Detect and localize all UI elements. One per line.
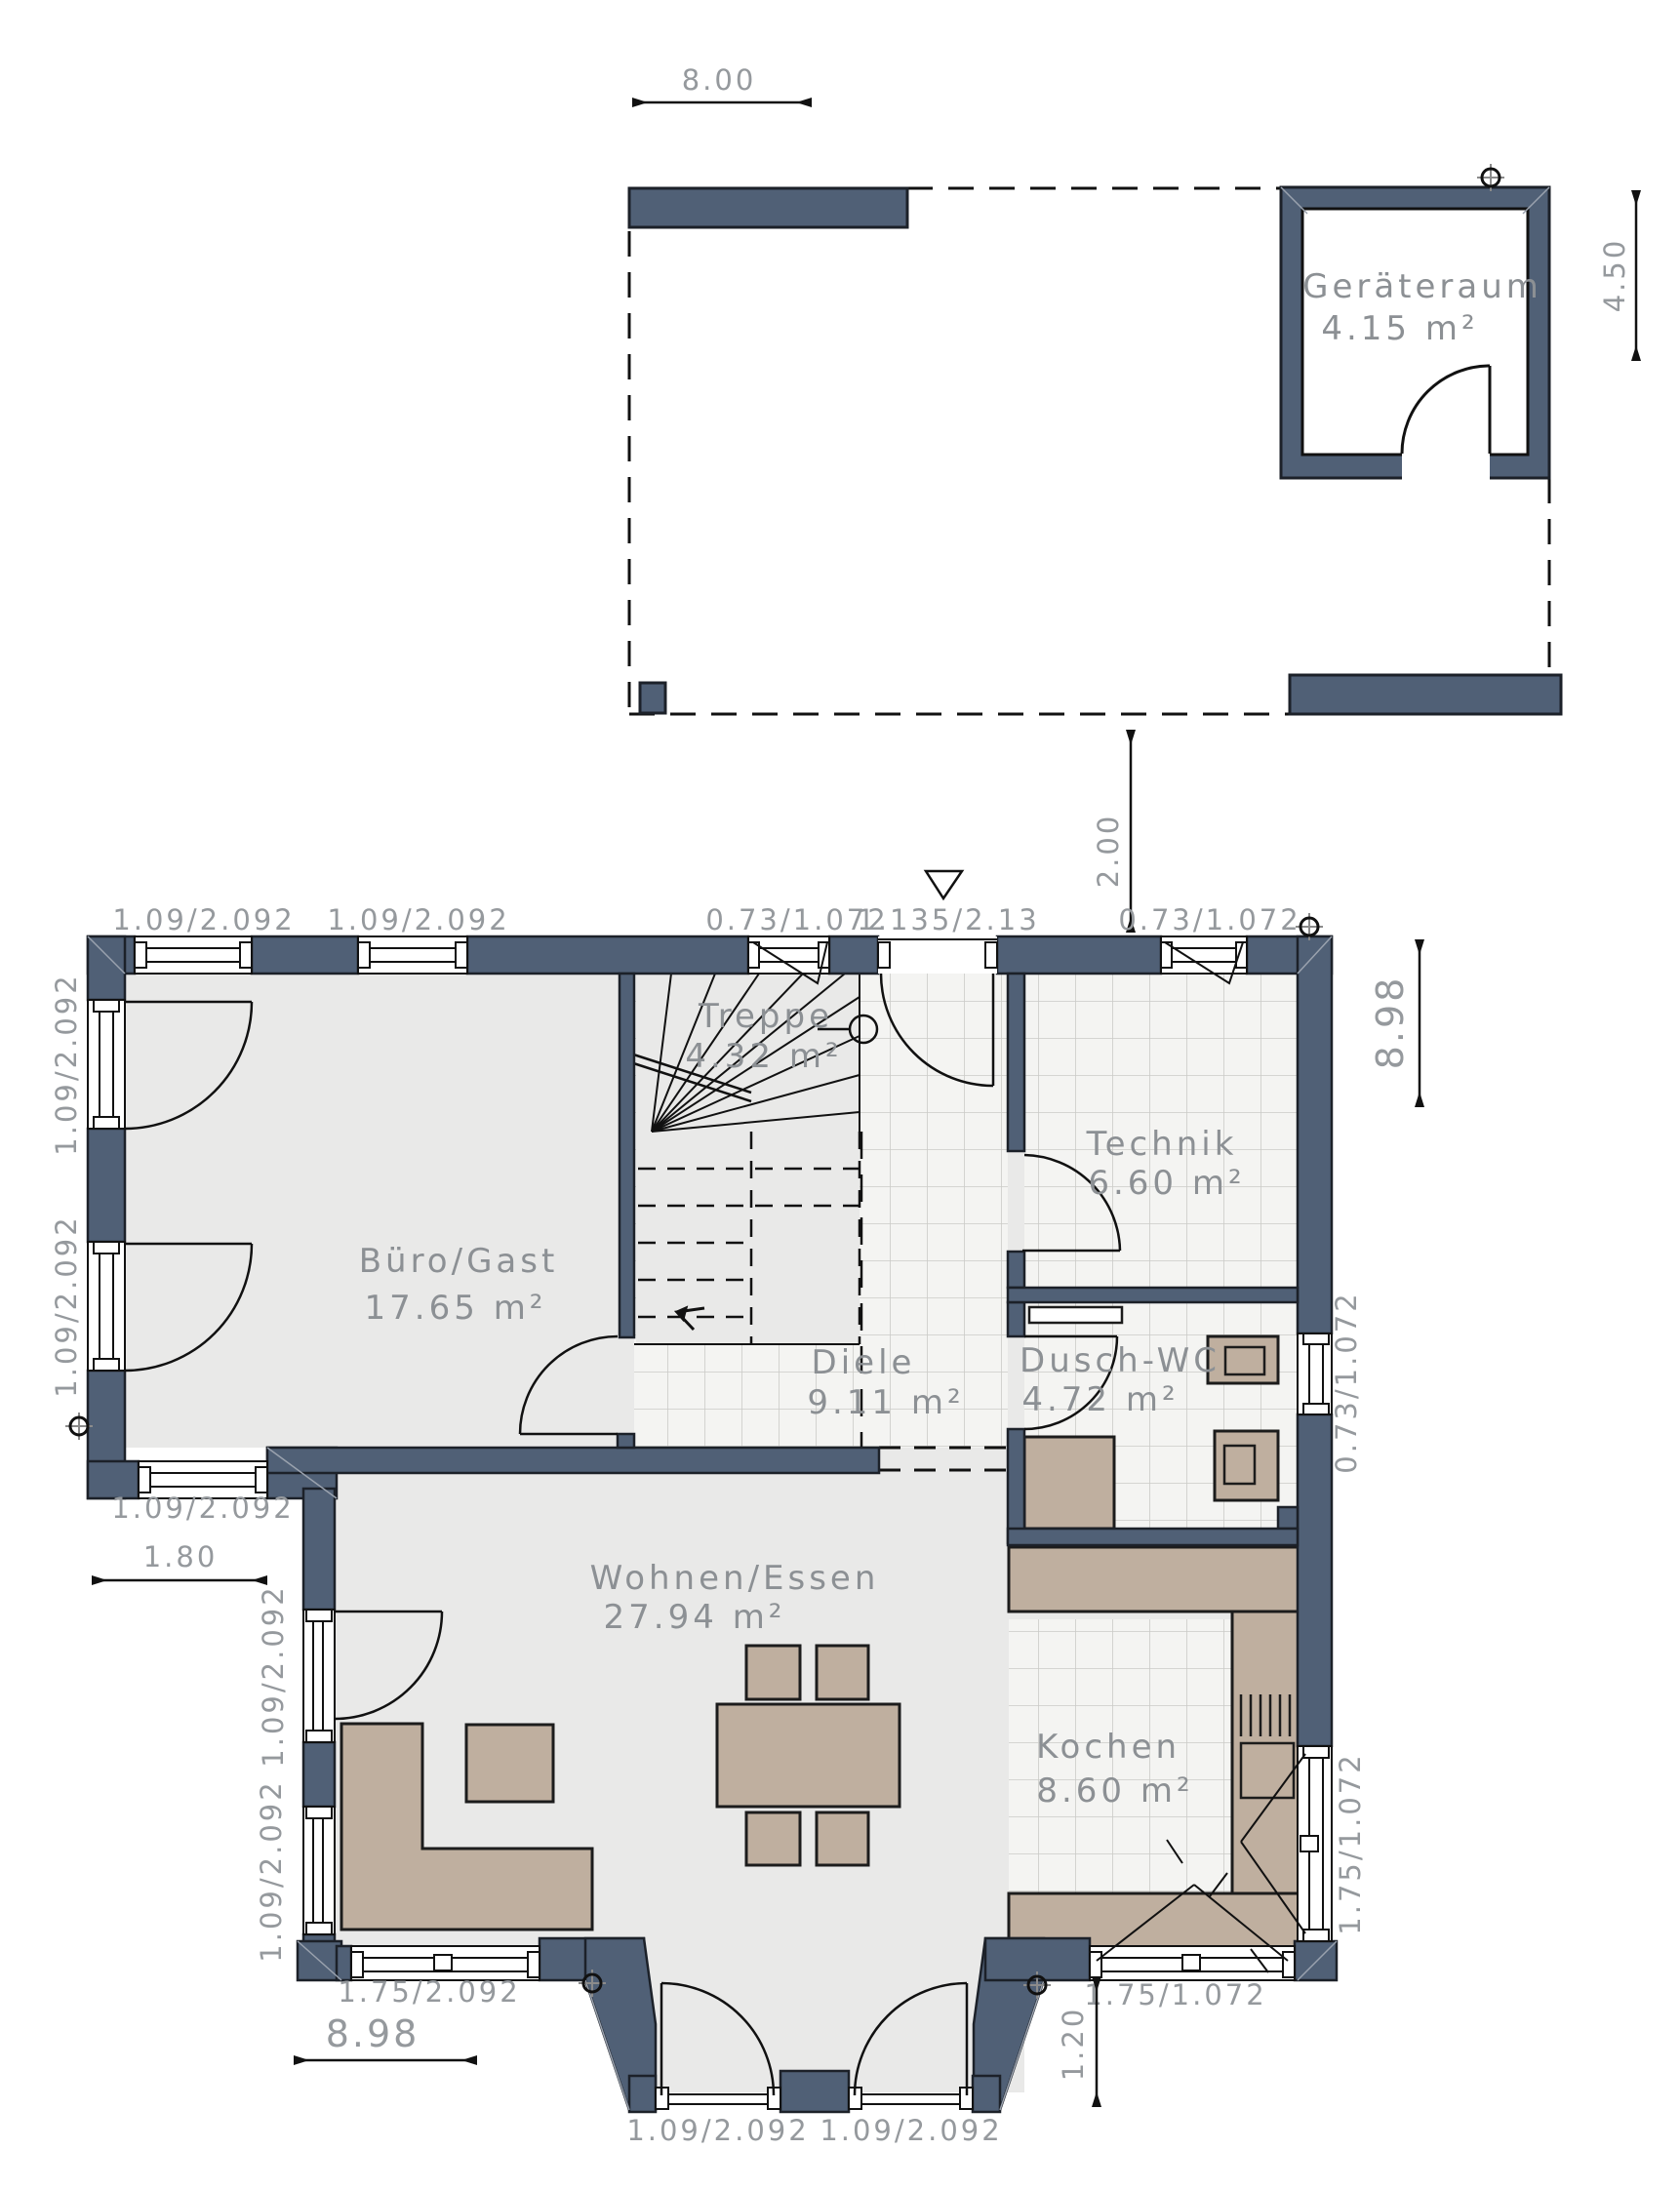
kochen-label: Kochen bbox=[1036, 1728, 1180, 1767]
window-wohnen-west-2 bbox=[303, 1807, 335, 1934]
kochen-area: 8.60 m² bbox=[1036, 1771, 1193, 1811]
carport-post bbox=[640, 683, 665, 713]
dim-wohnen-west1: 1.09/2.092 bbox=[257, 1584, 290, 1767]
entrance-opening bbox=[878, 936, 997, 974]
treppe-area: 4.32 m² bbox=[685, 1037, 842, 1076]
dim-offset-west: 1.80 bbox=[94, 1540, 265, 1580]
window-north-1 bbox=[135, 936, 252, 974]
buero-area: 17.65 m² bbox=[365, 1289, 547, 1328]
window-north-2 bbox=[358, 936, 467, 974]
technik-area: 6.60 m² bbox=[1088, 1164, 1245, 1203]
wohnen-label: Wohnen/Essen bbox=[590, 1559, 880, 1598]
kitchen-counter-top bbox=[1009, 1547, 1301, 1612]
duschwc-label: Dusch-WC bbox=[1020, 1341, 1220, 1380]
bath-shelf bbox=[1029, 1307, 1122, 1323]
geraeteraum-label: Geräteraum bbox=[1302, 267, 1542, 306]
dim-house-depth: 8.98 bbox=[1369, 941, 1420, 1105]
bay-center-pier bbox=[780, 2071, 849, 2112]
svg-text:1.80: 1.80 bbox=[143, 1540, 219, 1573]
dim-south-wohnen: 1.75/2.092 bbox=[338, 1975, 520, 2009]
coffee-table bbox=[466, 1725, 553, 1802]
chair bbox=[817, 1646, 868, 1699]
entrance-marker-icon bbox=[926, 871, 962, 898]
dining-table bbox=[717, 1704, 900, 1807]
dim-top-win2: 1.09/2.092 bbox=[327, 903, 509, 936]
chair bbox=[746, 1646, 800, 1699]
window-east-duschwc bbox=[1298, 1333, 1332, 1414]
dim-east-kochen: 1.75/1.072 bbox=[1334, 1752, 1367, 1934]
kitchen-counter-right bbox=[1232, 1612, 1301, 1893]
dim-carport-width: 8.00 bbox=[634, 63, 810, 102]
floor-plan-drawing: Geräteraum 4.15 m² 8.00 4.50 2.00 bbox=[0, 0, 1680, 2189]
dim-bay-right: 1.09/2.092 bbox=[820, 2114, 1002, 2147]
carport-wall-topleft bbox=[629, 188, 907, 227]
carport-wall-bottomright bbox=[1290, 675, 1561, 714]
geraeteraum-area: 4.15 m² bbox=[1321, 309, 1478, 348]
duschwc-area: 4.72 m² bbox=[1021, 1380, 1179, 1419]
dim-top-win1: 1.09/2.092 bbox=[112, 903, 295, 936]
svg-text:8.98: 8.98 bbox=[1369, 975, 1412, 1070]
treppe-label: Treppe bbox=[698, 997, 833, 1036]
dim-wohnen-west2: 1.09/2.092 bbox=[255, 1779, 288, 1962]
dim-south-kochen: 1.75/1.072 bbox=[1084, 1978, 1266, 2011]
diele-area: 9.11 m² bbox=[807, 1383, 964, 1422]
window-east-kochen bbox=[1298, 1746, 1332, 1941]
dim-top-win4: 0.73/1.072 bbox=[1118, 903, 1300, 936]
chair bbox=[746, 1812, 800, 1865]
floor-plan-page: Geräteraum 4.15 m² 8.00 4.50 2.00 bbox=[0, 0, 1680, 2189]
dim-bay-left: 1.09/2.092 bbox=[626, 2114, 809, 2147]
window-wohnen-west-1 bbox=[303, 1610, 335, 1742]
wohnen-area: 27.94 m² bbox=[604, 1598, 786, 1637]
svg-text:8.98: 8.98 bbox=[326, 2012, 420, 2055]
dim-gap: 2.00 bbox=[1092, 732, 1131, 931]
dim-house-width: 8.98 bbox=[296, 2012, 475, 2060]
dim-buero-south: 1.09/2.092 bbox=[111, 1492, 294, 1525]
shower-tray bbox=[1024, 1437, 1114, 1529]
window-west-1 bbox=[88, 1000, 125, 1129]
dim-entrance: 1.135/2.13 bbox=[857, 903, 1039, 936]
diele-label: Diele bbox=[812, 1343, 916, 1382]
svg-text:1.20: 1.20 bbox=[1057, 2007, 1090, 2082]
svg-text:8.00: 8.00 bbox=[682, 63, 757, 97]
dim-east-duschwc: 0.73/1.072 bbox=[1330, 1291, 1363, 1473]
svg-text:4.50: 4.50 bbox=[1598, 238, 1631, 313]
window-south-kochen bbox=[1090, 1946, 1295, 1980]
svg-text:2.00: 2.00 bbox=[1092, 814, 1125, 889]
buero-label: Büro/Gast bbox=[359, 1242, 559, 1281]
dim-west-win1: 1.09/2.092 bbox=[50, 973, 83, 1155]
window-west-2 bbox=[88, 1242, 125, 1371]
chair bbox=[817, 1812, 868, 1865]
dim-carport-depth: 4.50 bbox=[1598, 192, 1636, 359]
technik-label: Technik bbox=[1086, 1125, 1238, 1164]
dim-west-win2: 1.09/2.092 bbox=[50, 1214, 83, 1397]
window-north-3 bbox=[748, 936, 829, 974]
